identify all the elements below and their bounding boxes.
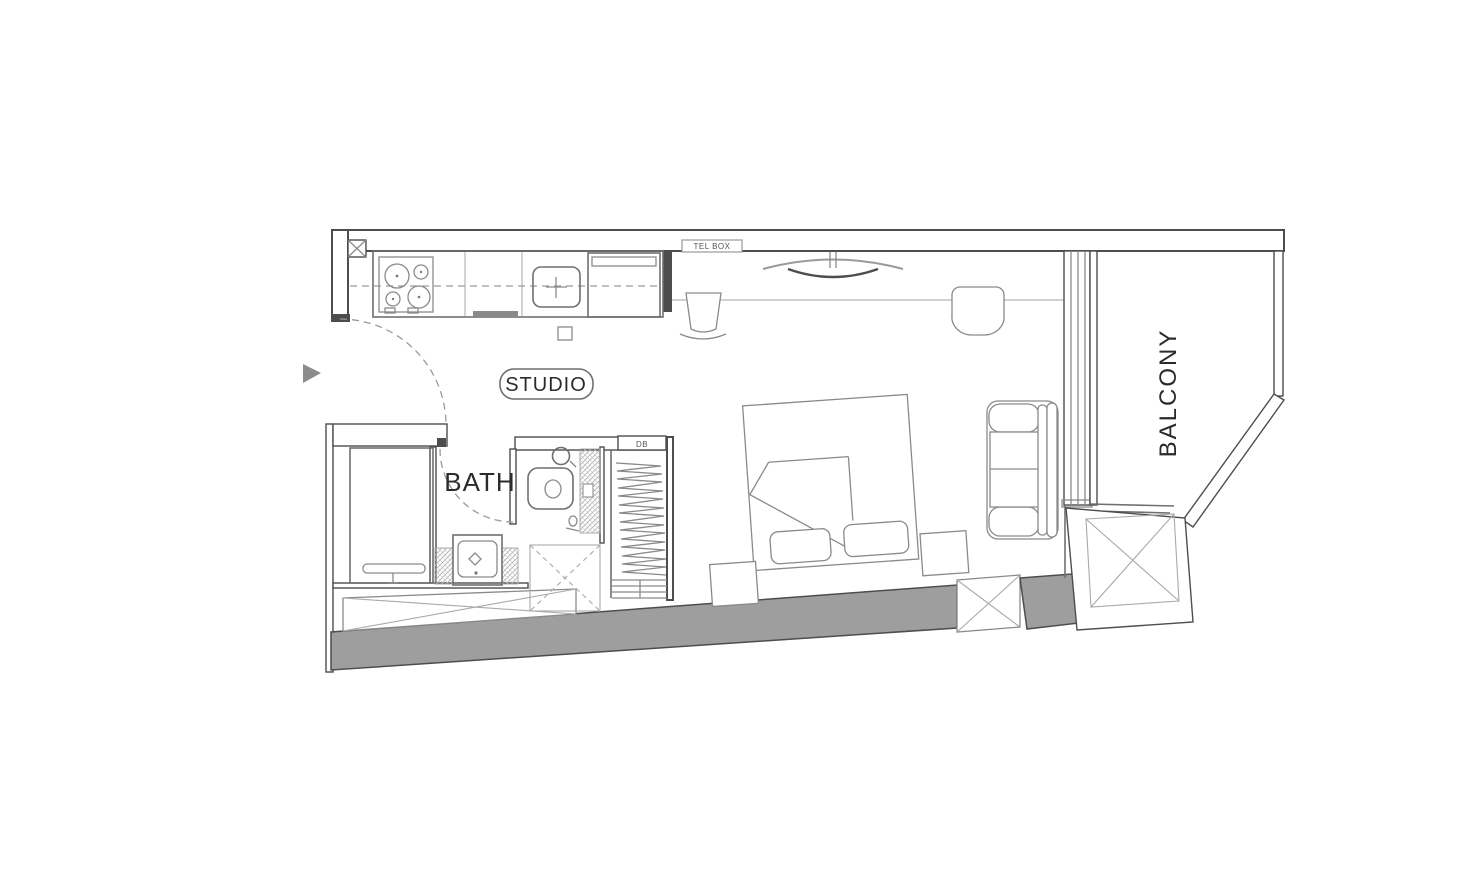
tel-box-label: TEL BOX xyxy=(694,242,731,251)
db-label: DB xyxy=(636,440,648,449)
balcony-railing-diagonal xyxy=(1183,394,1284,527)
nightstand xyxy=(920,531,969,576)
kitchen xyxy=(350,251,663,340)
drain-box xyxy=(583,484,593,497)
entry xyxy=(303,319,446,425)
toilet-wardrobe-wall xyxy=(600,447,604,543)
balcony-label: BALCONY xyxy=(1155,329,1182,458)
kitchen-sink-icon xyxy=(533,267,580,307)
floor-box xyxy=(558,327,572,340)
sliding-door xyxy=(1062,251,1092,507)
toilet-icon xyxy=(528,468,573,509)
chair-icon xyxy=(680,293,726,339)
bath-door-jamb xyxy=(437,438,446,447)
entry-door-swing-arc xyxy=(340,319,446,425)
sofa-armrest xyxy=(989,404,1039,432)
bath-block xyxy=(333,424,673,631)
gray-pillar xyxy=(1020,574,1079,629)
fridge-icon xyxy=(588,253,660,317)
towel-rail xyxy=(363,564,425,573)
toilet-area xyxy=(528,448,600,534)
studio-room: TEL BOX STUDIO xyxy=(500,240,1064,607)
tv-icon xyxy=(763,252,903,277)
sofa-back xyxy=(1038,405,1047,535)
closet-top-wall xyxy=(333,424,447,446)
bottom-window xyxy=(957,575,1020,632)
pillow xyxy=(770,528,832,564)
column-marker xyxy=(348,240,366,257)
counter-edge-detail xyxy=(473,311,518,317)
sofa-armrest xyxy=(989,507,1039,536)
floor-plan-image: TEL BOX STUDIO xyxy=(0,0,1466,878)
sofa xyxy=(987,401,1058,539)
kitchen-wall-stub xyxy=(663,251,672,312)
wardrobe-shelves xyxy=(612,580,667,598)
studio-label-box: STUDIO xyxy=(500,369,593,399)
balcony-section: BALCONY xyxy=(1062,251,1284,630)
wardrobe-right-wall xyxy=(667,437,673,600)
wardrobe xyxy=(611,437,673,600)
studio-label: STUDIO xyxy=(505,374,587,396)
bath-label: BATH xyxy=(444,467,515,497)
stove-icon xyxy=(379,257,433,313)
bed xyxy=(699,391,970,607)
top-wall xyxy=(332,230,1284,251)
nightstand xyxy=(710,561,759,606)
tile-strip xyxy=(435,548,453,584)
left-upper-wall xyxy=(332,230,348,318)
paper-holder-icon xyxy=(566,516,579,531)
balcony-railing xyxy=(1274,251,1283,396)
floor-plan-svg: TEL BOX STUDIO xyxy=(0,0,1466,878)
ac-platform xyxy=(1066,508,1193,630)
tile-strip xyxy=(502,548,518,584)
tel-box: TEL BOX xyxy=(682,240,742,252)
pillow xyxy=(843,521,909,557)
chair-icon xyxy=(952,287,1004,335)
balcony-left-wall xyxy=(1090,251,1097,505)
entrance-arrow-icon xyxy=(303,364,321,383)
hanger-zigzag xyxy=(616,463,666,575)
entry-jamb-top xyxy=(331,314,350,322)
closet-room xyxy=(350,448,433,583)
sofa-back xyxy=(1047,403,1057,537)
vanity-sink xyxy=(435,535,518,585)
